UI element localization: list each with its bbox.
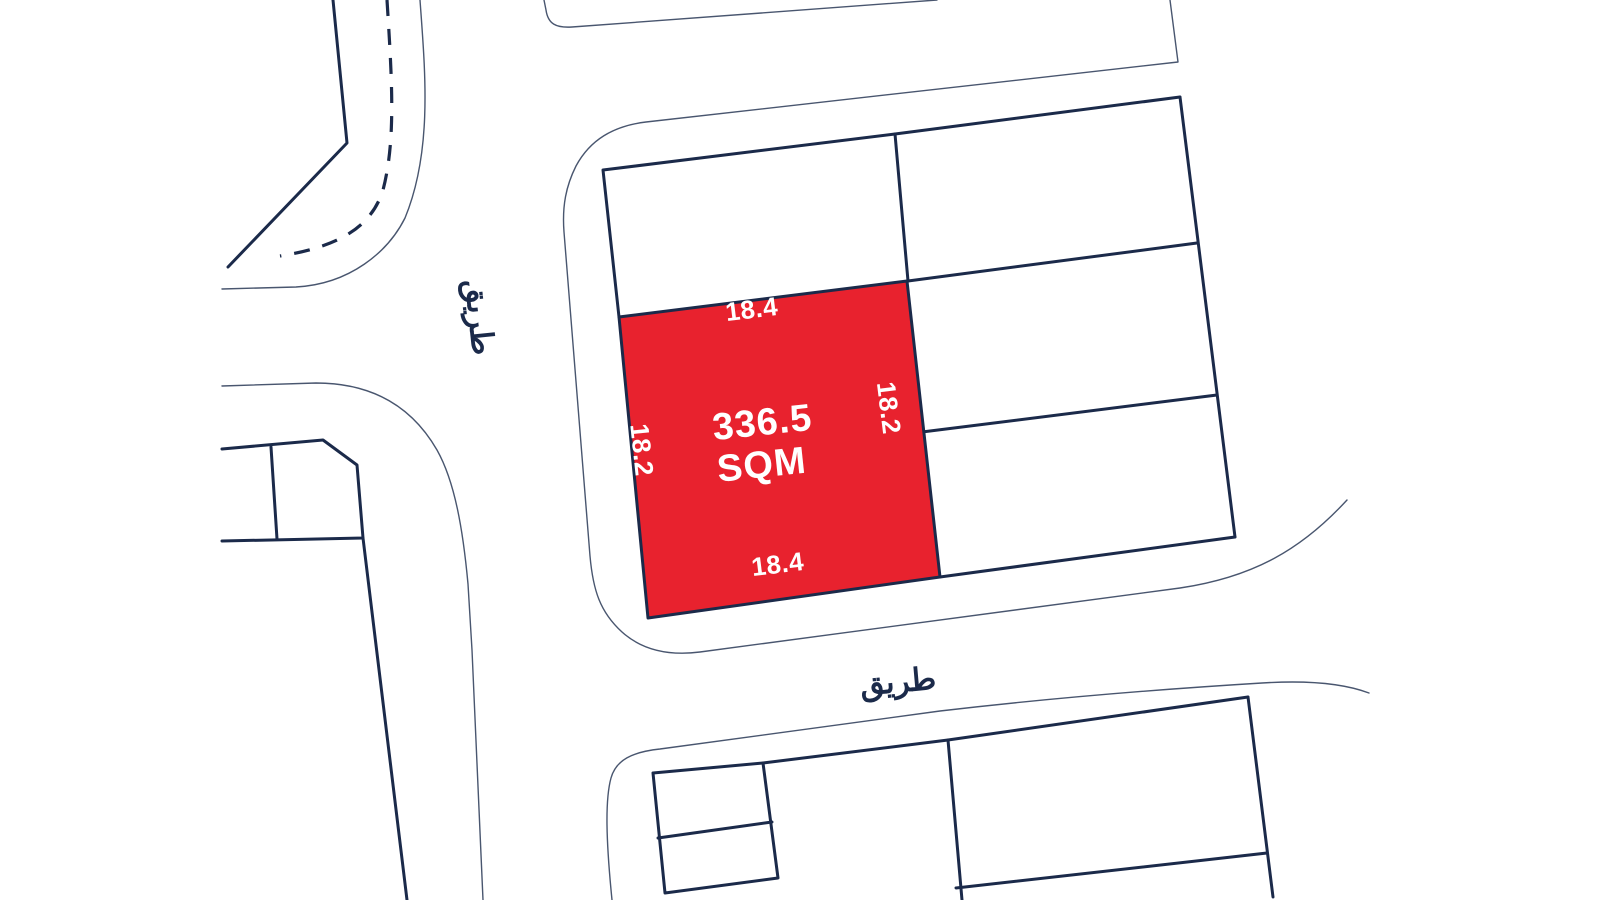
plot-divider-central-2 <box>922 395 1217 432</box>
plot-edge-left-south <box>363 538 407 900</box>
block-boundary-bottom <box>607 682 1369 900</box>
plot-edge-bottom-top <box>763 697 1248 763</box>
plot-divider-left-block <box>271 447 277 539</box>
block-boundary-top-left <box>544 0 937 27</box>
plot-edge-bottom-right <box>1248 697 1273 897</box>
road-inner-edge-topleft <box>228 0 347 267</box>
plot-outline-bottom-small-column <box>653 763 778 893</box>
dimension-label-top: 18.4 <box>724 291 780 327</box>
road-name-label-bottom: طريق <box>858 661 937 705</box>
dimension-label-right: 18.2 <box>871 380 907 436</box>
plot-divider-bottom-small <box>658 822 772 838</box>
dimension-label-left: 18.2 <box>624 422 659 477</box>
plot-outline-left-block <box>222 440 363 541</box>
plot-edge-central-right-top <box>895 97 1180 134</box>
dimension-label-bottom: 18.4 <box>750 546 806 582</box>
area-label-group: 336.5 SQM <box>710 397 818 491</box>
cadastral-map: 18.4 18.2 18.2 18.4 336.5 SQM طريق طريق <box>0 0 1600 900</box>
plot-edge-central-right-bottom <box>940 537 1235 577</box>
plot-edge-central-right-side <box>1180 97 1235 537</box>
plot-divider-central-1 <box>908 243 1197 281</box>
road-name-label-left: طريق <box>456 277 501 357</box>
plot-divider-bottom-right <box>956 853 1267 888</box>
plot-divider-central-vertical <box>895 134 908 281</box>
plot-divider-bottom-vertical <box>948 740 962 900</box>
map-canvas: 18.4 18.2 18.2 18.4 336.5 SQM طريق طريق <box>0 0 1600 900</box>
